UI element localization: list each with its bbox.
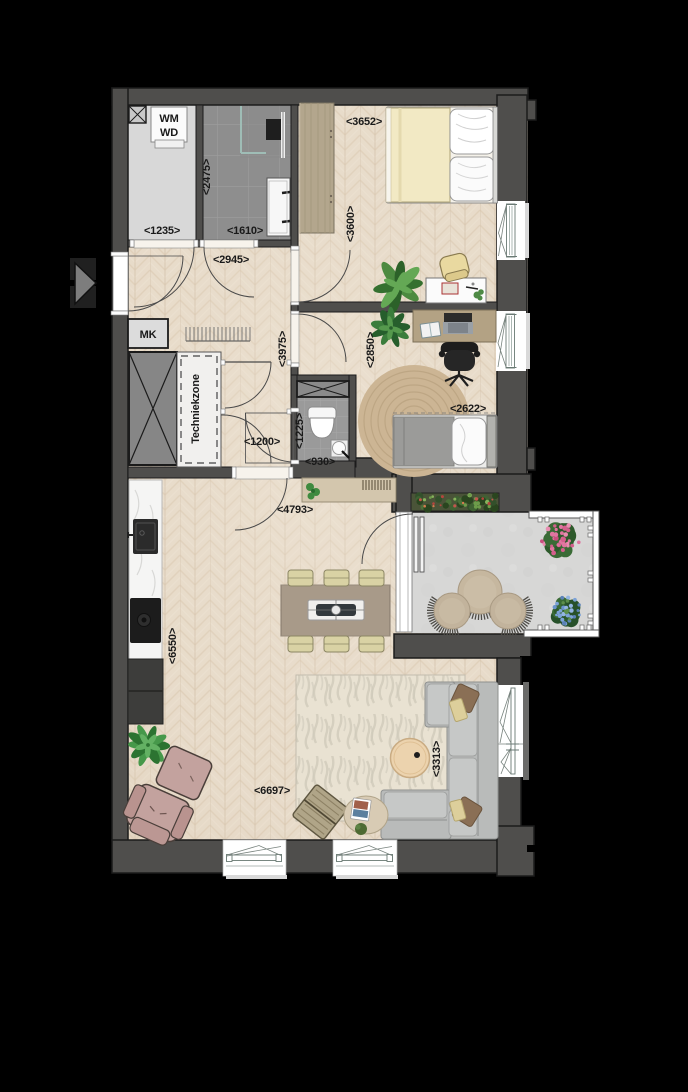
svg-text:Techniekzone: Techniekzone [190,374,202,444]
svg-text:<2945>: <2945> [213,254,249,266]
svg-text:<3600>: <3600> [345,206,357,242]
svg-text:<3313>: <3313> [431,741,443,777]
svg-text:<6550>: <6550> [167,628,179,664]
svg-text:<1200>: <1200> [244,436,280,448]
svg-text:<2475>: <2475> [201,159,213,195]
svg-text:WM: WM [159,113,178,125]
svg-text:<1610>: <1610> [227,225,263,237]
svg-text:WD: WD [160,127,178,139]
svg-text:<3652>: <3652> [346,116,382,128]
svg-text:<1235>: <1235> [144,225,180,237]
svg-text:<4793>: <4793> [277,504,313,516]
svg-text:MK: MK [140,329,157,341]
svg-text:<2622>: <2622> [450,403,486,415]
svg-text:<2850>: <2850> [365,332,377,368]
svg-text:<930>: <930> [305,456,335,468]
svg-text:<3975>: <3975> [277,331,289,367]
svg-text:<6697>: <6697> [254,785,290,797]
svg-text:<1225>: <1225> [294,413,306,449]
